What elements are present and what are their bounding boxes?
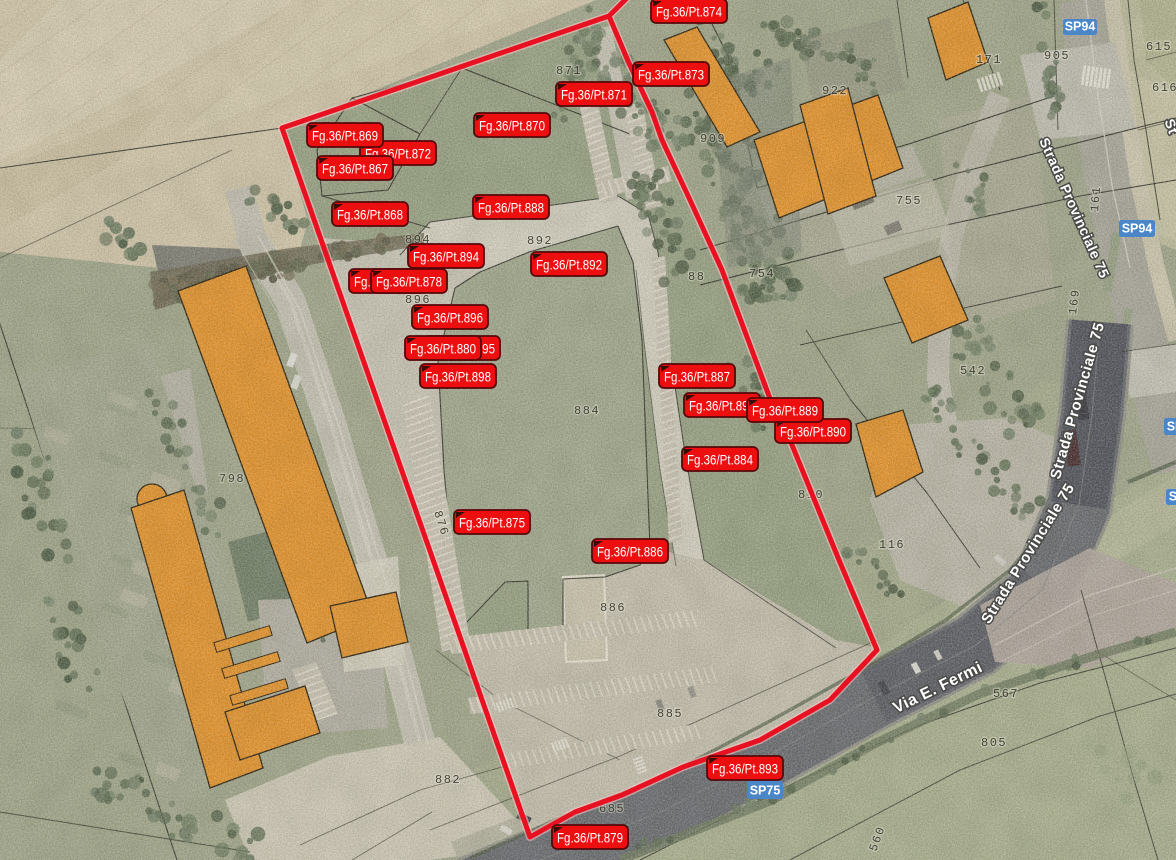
svg-text:SP94: SP94: [1167, 420, 1176, 434]
svg-text:Fg.36/Pt.893: Fg.36/Pt.893: [712, 761, 778, 777]
svg-text:116: 116: [879, 538, 905, 552]
svg-text:161: 161: [1088, 185, 1104, 212]
svg-text:754: 754: [749, 267, 775, 281]
svg-text:567: 567: [993, 687, 1019, 701]
svg-text:Fg.36/Pt.892: Fg.36/Pt.892: [536, 257, 602, 273]
svg-text:Fg.36/Pt.875: Fg.36/Pt.875: [459, 515, 525, 531]
svg-text:909: 909: [700, 132, 726, 146]
svg-text:SP94: SP94: [1065, 20, 1096, 34]
svg-text:Fg.36/Pt.879: Fg.36/Pt.879: [557, 830, 623, 846]
svg-text:882: 882: [435, 773, 461, 787]
svg-text:88: 88: [688, 270, 705, 284]
svg-text:805: 805: [981, 736, 1007, 750]
svg-text:Fg.36/Pt.880: Fg.36/Pt.880: [410, 341, 476, 357]
svg-text:905: 905: [1044, 49, 1070, 63]
svg-text:Fg.36/Pt.898: Fg.36/Pt.898: [425, 369, 491, 385]
svg-text:Fg.36/Pt.884: Fg.36/Pt.884: [687, 452, 753, 468]
svg-text:Fg.36/Pt.886: Fg.36/Pt.886: [597, 544, 663, 560]
svg-text:Fg.36/Pt.890: Fg.36/Pt.890: [780, 424, 846, 440]
svg-text:Fg.36/Pt.867: Fg.36/Pt.867: [322, 161, 388, 177]
svg-text:Fg.36/Pt.894: Fg.36/Pt.894: [413, 249, 479, 265]
svg-text:Fg.36/Pt.897: Fg.36/Pt.897: [689, 398, 755, 414]
svg-text:SP94: SP94: [1122, 222, 1153, 236]
svg-text:922: 922: [822, 84, 848, 98]
svg-text:SP75: SP75: [1169, 490, 1176, 504]
svg-text:886: 886: [600, 601, 626, 615]
svg-text:Fg.36/Pt.888: Fg.36/Pt.888: [478, 200, 544, 216]
svg-text:Fg.36/Pt.878: Fg.36/Pt.878: [376, 274, 442, 290]
svg-text:616: 616: [1152, 81, 1176, 95]
svg-text:885: 885: [657, 707, 683, 721]
svg-text:Fg.36/Pt.870: Fg.36/Pt.870: [479, 118, 545, 134]
svg-text:Fg.36/Pt.868: Fg.36/Pt.868: [337, 207, 403, 223]
svg-text:171: 171: [976, 53, 1002, 67]
svg-text:Fg.36/Pt.873: Fg.36/Pt.873: [638, 67, 704, 83]
svg-text:Fg.36/Pt.887: Fg.36/Pt.887: [664, 369, 730, 385]
svg-text:542: 542: [960, 364, 986, 378]
svg-text:Fg.36/Pt.889: Fg.36/Pt.889: [752, 403, 818, 419]
svg-text:892: 892: [527, 234, 553, 248]
svg-text:Fg.36/Pt.869: Fg.36/Pt.869: [312, 128, 378, 144]
svg-text:Fg.36/Pt.871: Fg.36/Pt.871: [561, 87, 627, 103]
svg-text:755: 755: [896, 194, 922, 208]
svg-text:871: 871: [556, 64, 582, 78]
svg-text:SP75: SP75: [750, 784, 781, 798]
svg-text:884: 884: [574, 404, 600, 418]
svg-text:Fg.36/Pt.874: Fg.36/Pt.874: [656, 4, 722, 20]
svg-text:615: 615: [1146, 40, 1172, 54]
svg-text:798: 798: [219, 472, 245, 486]
svg-text:Fg.36/Pt.896: Fg.36/Pt.896: [417, 310, 483, 326]
